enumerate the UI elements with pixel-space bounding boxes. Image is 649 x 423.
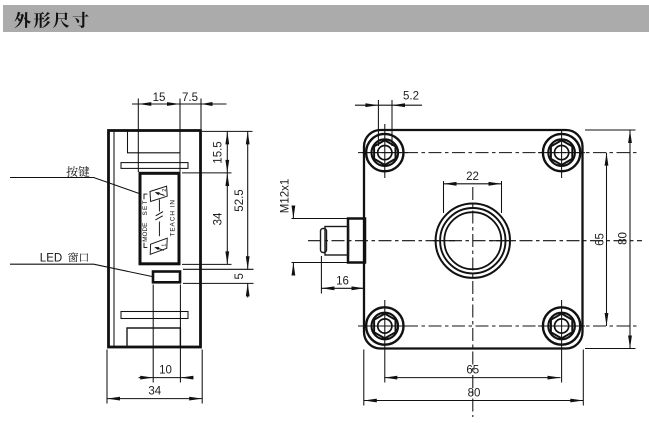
svg-text:34: 34 [148,386,161,398]
svg-text:LED: LED [40,252,62,264]
svg-text:M12x1: M12x1 [280,179,292,214]
svg-text:80: 80 [618,232,630,245]
svg-text:10: 10 [159,365,172,377]
svg-text:15.5: 15.5 [213,141,225,163]
svg-text:52.5: 52.5 [234,189,246,211]
svg-text:16: 16 [336,275,349,287]
svg-text:5.2: 5.2 [403,91,419,103]
svg-text:7.5: 7.5 [182,92,198,104]
svg-text:15: 15 [153,92,166,104]
svg-text:SET: SET [142,200,149,215]
svg-text:MODE: MODE [142,223,149,242]
svg-text:65: 65 [466,364,479,376]
svg-text:65: 65 [595,233,607,246]
svg-text:5: 5 [234,273,246,279]
svg-text:34: 34 [213,212,225,225]
svg-text:80: 80 [468,387,481,399]
svg-text:22: 22 [466,171,479,183]
svg-text:TEACH IN: TEACH IN [170,200,177,237]
svg-text:2: 2 [162,189,168,192]
svg-text:1: 1 [162,244,168,247]
